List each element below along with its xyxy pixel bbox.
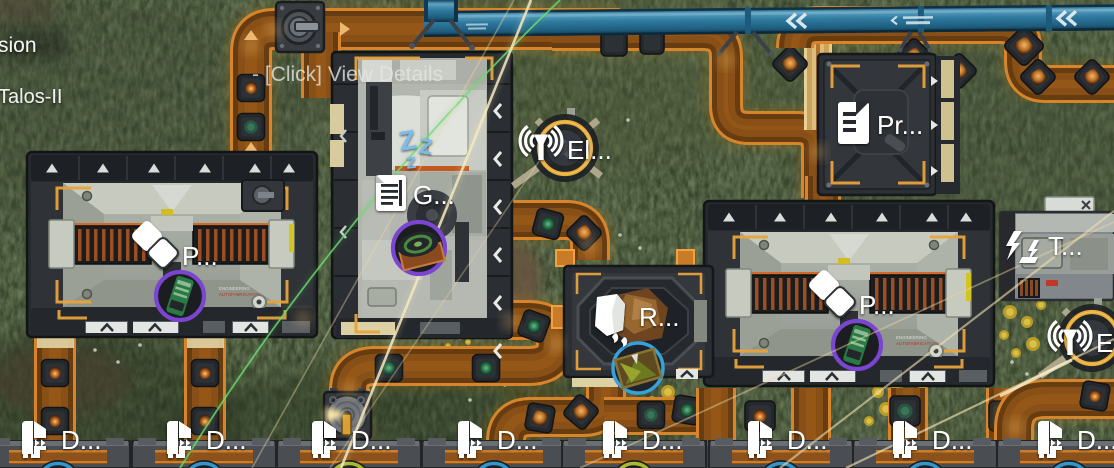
- svg-text:El...: El...: [567, 135, 612, 165]
- svg-text:D...: D...: [1077, 425, 1114, 455]
- svg-text:D...: D...: [932, 425, 972, 455]
- svg-text:T...: T...: [1048, 231, 1083, 261]
- svg-text:D...: D...: [497, 425, 537, 455]
- svg-text:sion: sion: [0, 34, 37, 57]
- svg-text:ENGINEERING: ENGINEERING: [896, 335, 927, 340]
- svg-text:D...: D...: [61, 425, 101, 455]
- svg-text:- [Click] View Details: - [Click] View Details: [252, 63, 443, 86]
- svg-text:R...: R...: [639, 302, 679, 332]
- svg-text:D...: D...: [787, 425, 827, 455]
- svg-text:G...: G...: [413, 180, 455, 210]
- svg-text:Z: Z: [406, 155, 418, 173]
- svg-text:D...: D...: [351, 425, 391, 455]
- svg-text:D...: D...: [642, 425, 682, 455]
- svg-text:ENGINEERING: ENGINEERING: [219, 286, 250, 291]
- svg-text:Talos-II: Talos-II: [0, 86, 62, 108]
- svg-text:P...: P...: [859, 290, 895, 320]
- svg-text:D...: D...: [206, 425, 246, 455]
- svg-text:Pr...: Pr...: [877, 110, 923, 140]
- svg-text:E...: E...: [1096, 328, 1114, 358]
- svg-text:P...: P...: [182, 241, 218, 271]
